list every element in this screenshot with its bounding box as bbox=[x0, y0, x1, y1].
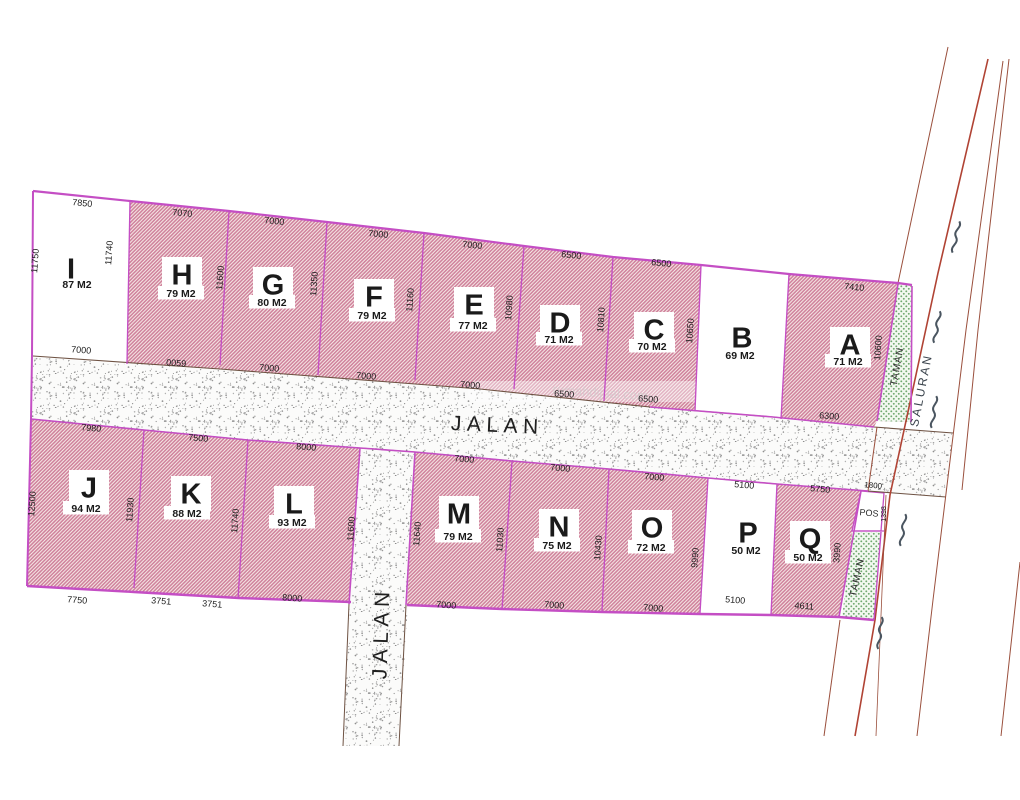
svg-text:11640: 11640 bbox=[411, 521, 423, 546]
svg-text:11030: 11030 bbox=[494, 527, 506, 552]
svg-text:71 M2: 71 M2 bbox=[833, 356, 862, 368]
svg-text:10650: 10650 bbox=[684, 318, 696, 344]
svg-text:6500: 6500 bbox=[638, 393, 659, 404]
svg-text:1800: 1800 bbox=[864, 480, 883, 491]
svg-text:7000: 7000 bbox=[544, 599, 565, 610]
svg-text:10980: 10980 bbox=[503, 295, 515, 321]
svg-text:79 M2: 79 M2 bbox=[443, 531, 472, 543]
svg-text:7000: 7000 bbox=[460, 379, 481, 390]
svg-text:J: J bbox=[81, 473, 97, 505]
svg-text:10810: 10810 bbox=[595, 307, 607, 333]
svg-text:79 M2: 79 M2 bbox=[357, 310, 386, 322]
svg-text:7000: 7000 bbox=[643, 602, 664, 613]
svg-text:5100: 5100 bbox=[725, 594, 746, 605]
svg-text:7500: 7500 bbox=[188, 432, 209, 444]
svg-text:6300: 6300 bbox=[819, 410, 840, 421]
svg-text:10600: 10600 bbox=[872, 335, 884, 361]
svg-text:93 M2: 93 M2 bbox=[277, 517, 306, 529]
svg-text:75 M2: 75 M2 bbox=[542, 540, 571, 552]
svg-text:7000: 7000 bbox=[368, 228, 389, 240]
svg-text:7000: 7000 bbox=[550, 462, 571, 474]
svg-text:7000: 7000 bbox=[462, 239, 483, 251]
svg-text:9990: 9990 bbox=[689, 547, 700, 568]
svg-text:11750: 11750 bbox=[29, 248, 41, 273]
svg-text:Q: Q bbox=[799, 524, 822, 556]
svg-text:3751: 3751 bbox=[151, 595, 172, 606]
svg-text:8000: 8000 bbox=[282, 592, 303, 603]
svg-text:K: K bbox=[181, 479, 202, 511]
svg-text:3751: 3751 bbox=[202, 598, 223, 609]
svg-text:6500: 6500 bbox=[651, 257, 672, 269]
svg-text:7850: 7850 bbox=[72, 197, 93, 209]
svg-text:O: O bbox=[641, 513, 664, 545]
svg-text:80 M2: 80 M2 bbox=[257, 297, 286, 309]
svg-text:69 M2: 69 M2 bbox=[725, 350, 754, 362]
svg-text:71 M2: 71 M2 bbox=[544, 334, 573, 346]
svg-text:11740: 11740 bbox=[103, 240, 115, 265]
svg-text:JALAN: JALAN bbox=[450, 412, 544, 439]
svg-text:H: H bbox=[172, 260, 193, 292]
svg-text:79 M2: 79 M2 bbox=[166, 288, 195, 300]
svg-text:7000: 7000 bbox=[71, 344, 92, 355]
svg-text:7000: 7000 bbox=[264, 215, 285, 227]
svg-text:POS: POS bbox=[859, 507, 879, 519]
svg-text:0059: 0059 bbox=[166, 357, 187, 368]
svg-text:7980: 7980 bbox=[81, 422, 102, 434]
svg-text:72 M2: 72 M2 bbox=[636, 542, 665, 554]
svg-text:87 M2: 87 M2 bbox=[62, 279, 91, 291]
svg-text:7410: 7410 bbox=[844, 281, 865, 293]
svg-text:7750: 7750 bbox=[67, 594, 88, 605]
svg-text:1398: 1398 bbox=[881, 506, 888, 522]
svg-text:3990: 3990 bbox=[831, 542, 842, 563]
svg-text:JALAN: JALAN bbox=[368, 586, 394, 680]
svg-text:70 M2: 70 M2 bbox=[637, 341, 666, 353]
svg-text:7000: 7000 bbox=[644, 471, 665, 483]
svg-text:5100: 5100 bbox=[734, 479, 755, 491]
svg-text:L: L bbox=[285, 489, 303, 521]
svg-text:77 M2: 77 M2 bbox=[458, 320, 487, 332]
svg-text:11350: 11350 bbox=[308, 271, 320, 296]
svg-text:11930: 11930 bbox=[124, 497, 136, 522]
svg-text:50 M2: 50 M2 bbox=[731, 545, 760, 557]
svg-text:50 M2: 50 M2 bbox=[793, 552, 822, 564]
svg-text:11160: 11160 bbox=[404, 288, 416, 312]
svg-text:7000: 7000 bbox=[356, 370, 377, 381]
svg-text:94 M2: 94 M2 bbox=[71, 503, 100, 515]
svg-text:10430: 10430 bbox=[592, 535, 604, 561]
svg-text:11600: 11600 bbox=[345, 516, 357, 541]
svg-text:88 M2: 88 M2 bbox=[172, 508, 201, 520]
svg-text:4611: 4611 bbox=[794, 600, 814, 611]
svg-text:N: N bbox=[549, 512, 570, 544]
svg-text:11600: 11600 bbox=[214, 265, 226, 290]
svg-text:5750: 5750 bbox=[810, 483, 831, 495]
svg-text:11740: 11740 bbox=[229, 508, 241, 533]
svg-text:8000: 8000 bbox=[296, 441, 317, 453]
svg-text:7000: 7000 bbox=[436, 599, 457, 610]
svg-text:6500: 6500 bbox=[561, 249, 582, 261]
svg-text:7070: 7070 bbox=[172, 207, 193, 219]
svg-text:E: E bbox=[464, 290, 483, 322]
svg-text:7000: 7000 bbox=[454, 453, 475, 465]
svg-text:M: M bbox=[447, 499, 471, 531]
svg-text:12500: 12500 bbox=[26, 491, 38, 517]
svg-text:F: F bbox=[365, 282, 383, 314]
svg-text:7000: 7000 bbox=[259, 362, 280, 373]
svg-text:6500: 6500 bbox=[554, 388, 575, 399]
